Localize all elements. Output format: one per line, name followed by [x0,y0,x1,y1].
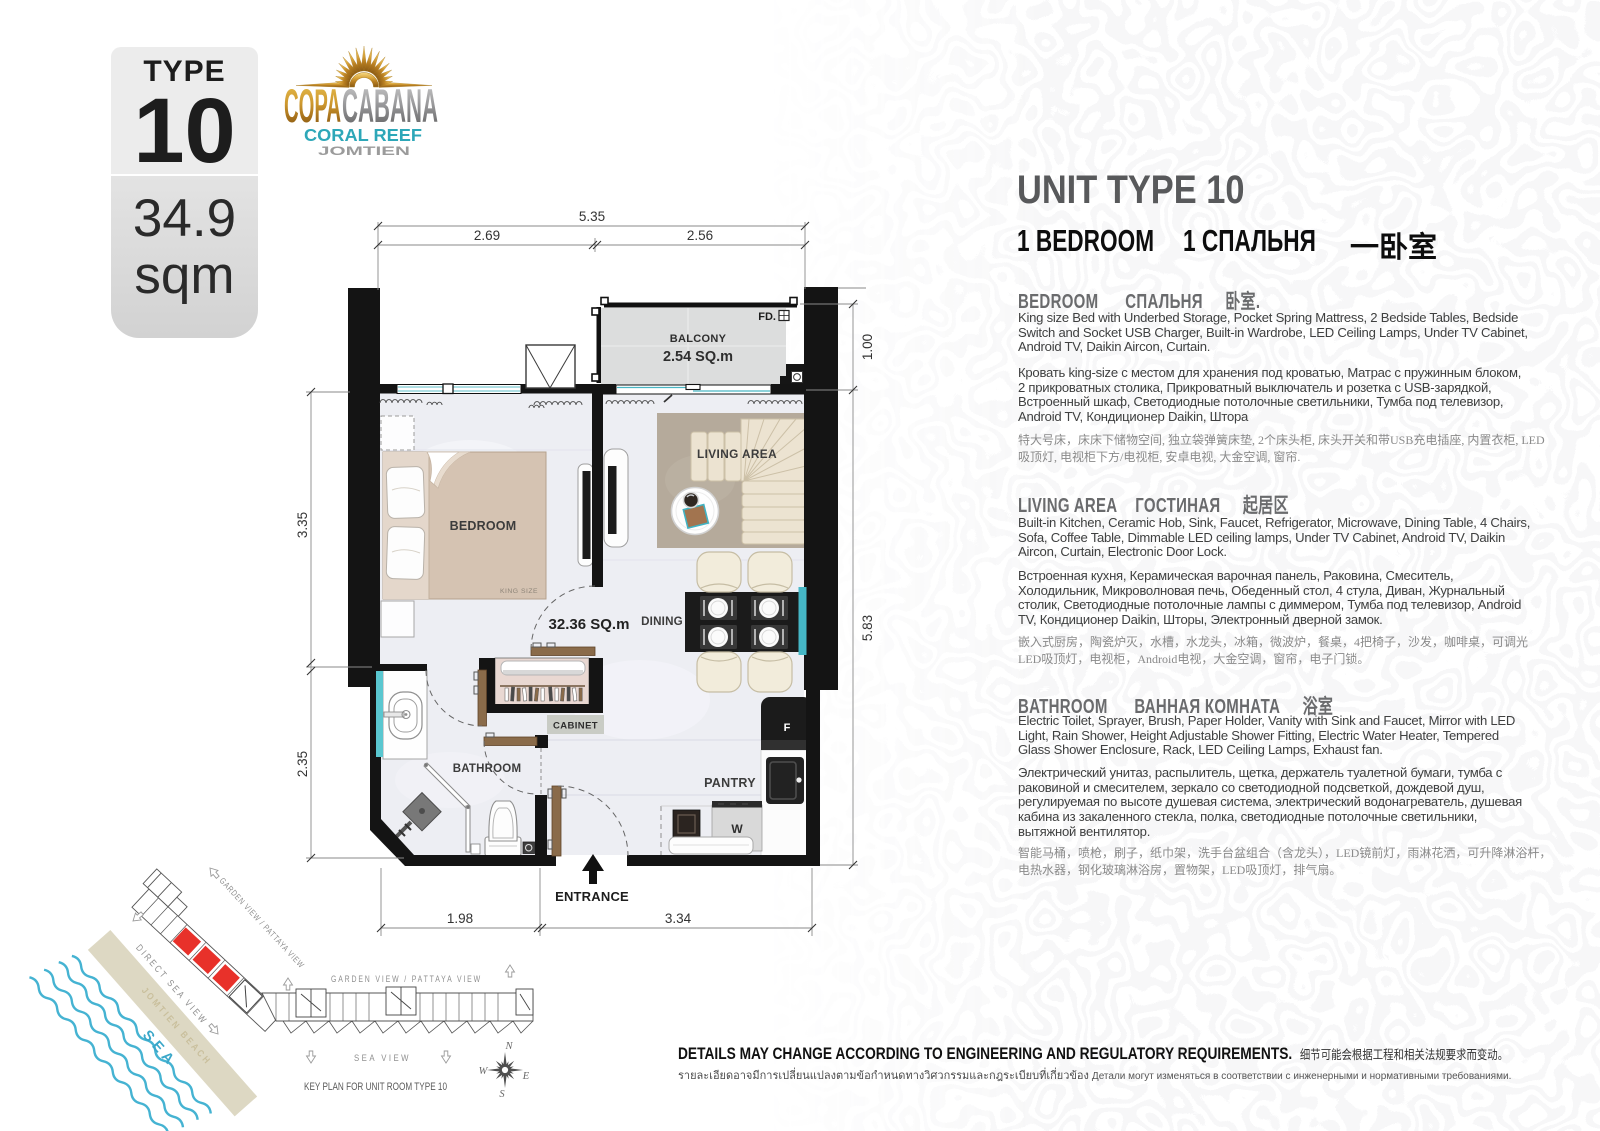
svg-text:KEY PLAN FOR UNIT ROOM TYPE 10: KEY PLAN FOR UNIT ROOM TYPE 10 [304,1081,447,1093]
svg-text:GARDEN VIEW / PATTAYA VIEW: GARDEN VIEW / PATTAYA VIEW [331,974,482,984]
svg-text:W: W [479,1066,489,1077]
svg-text:N: N [504,1041,513,1052]
svg-text:S: S [499,1089,505,1100]
svg-text:SEA VIEW: SEA VIEW [354,1053,411,1064]
svg-text:GARDEN VIEW / PATTAYA VIEW: GARDEN VIEW / PATTAYA VIEW [218,876,307,971]
svg-text:E: E [522,1071,530,1082]
